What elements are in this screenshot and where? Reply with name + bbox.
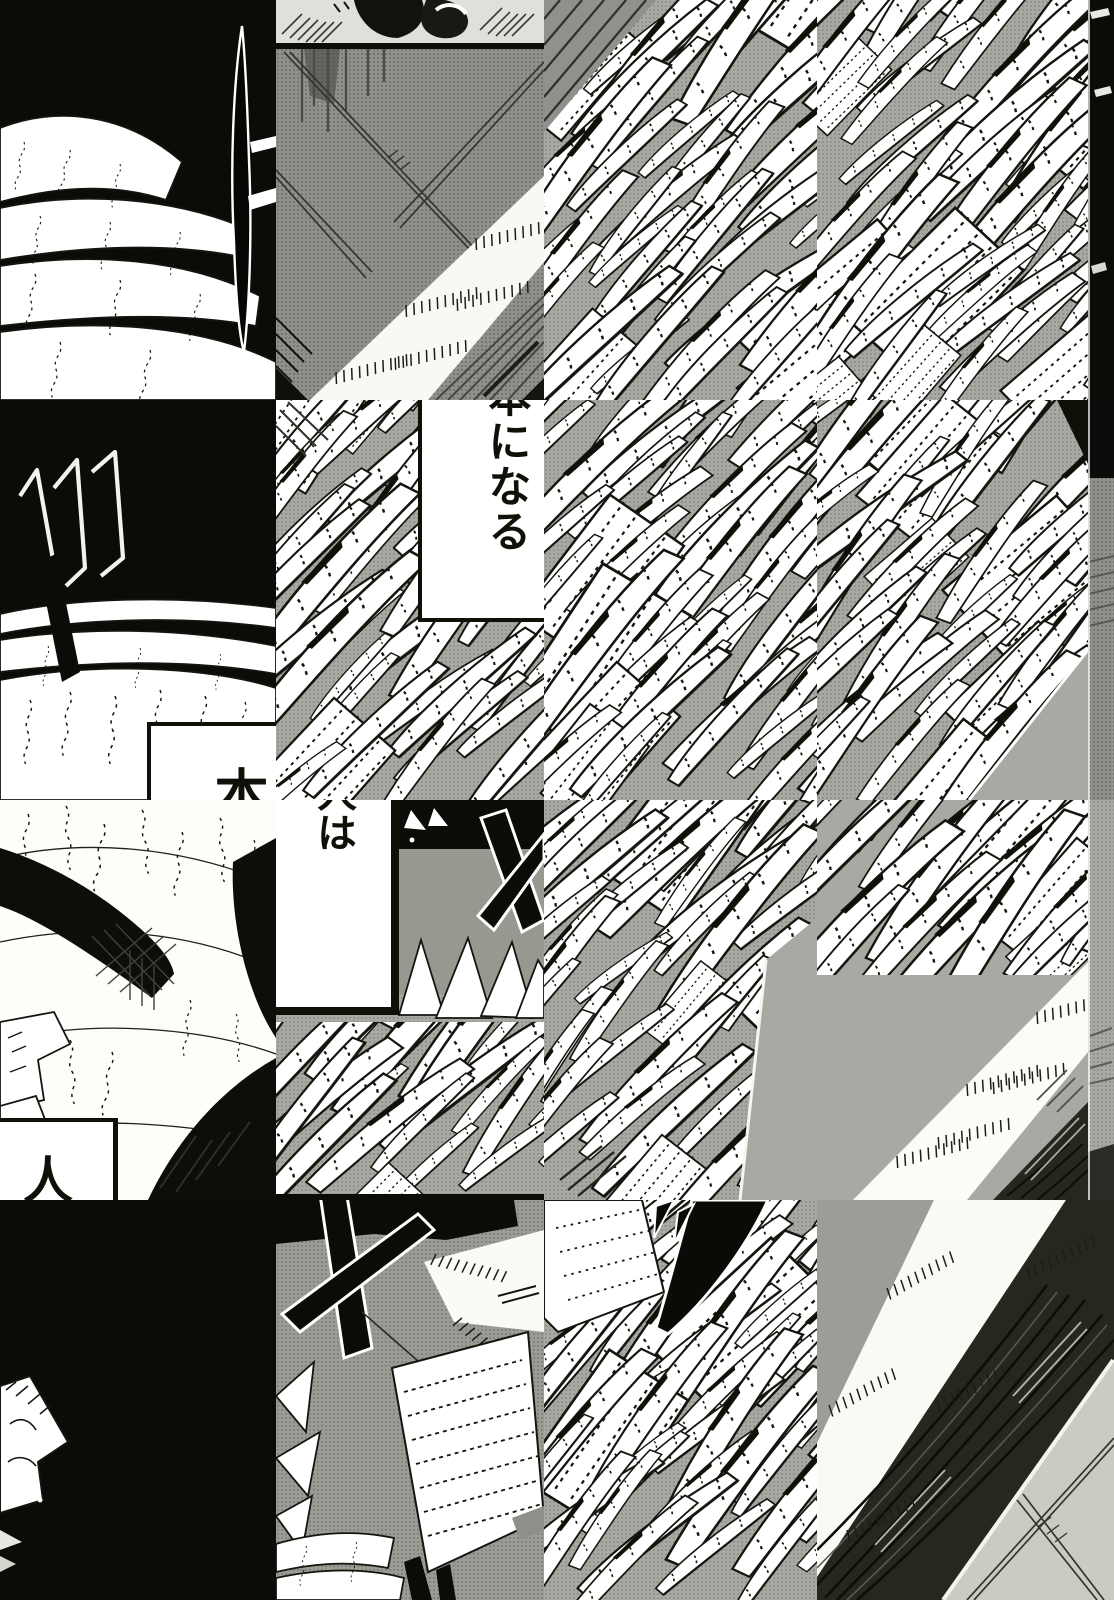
black-panel-paper-stack-artwork <box>0 0 276 400</box>
panel-overlay <box>544 800 817 1200</box>
edge-strip-artwork <box>1088 800 1114 1200</box>
panel-r3-c0 <box>0 1200 276 1600</box>
speech-text-person: 人 <box>8 1154 80 1200</box>
panel-r0-c3 <box>817 0 1088 400</box>
panel-r0-edge <box>1088 0 1114 400</box>
speech-text-person-wa: 人は <box>310 800 356 852</box>
panel-r1-edge <box>1088 400 1114 800</box>
speech-text-become-book: 本になる <box>480 400 530 554</box>
edge-strip-artwork <box>1088 0 1114 400</box>
manga-page: 本 本になる <box>0 0 1114 1600</box>
panel-r3-c1 <box>276 1200 544 1600</box>
panel-r2-c1: 人は <box>276 800 544 1200</box>
panel-r1-c1: 本になる <box>276 400 544 800</box>
panel-r3-c3 <box>817 1200 1114 1600</box>
panel-r2-edge <box>1088 800 1114 1200</box>
paper-pile-artwork <box>276 1022 544 1200</box>
panel-r1-c2 <box>544 400 817 800</box>
panel-overlay <box>544 1200 817 1600</box>
panel-r2-c0: 人 <box>0 800 276 1200</box>
panel-overlay <box>817 400 1088 800</box>
speech-text-book: 本 <box>197 766 276 800</box>
paper-pile-artwork <box>817 800 1088 975</box>
floor-bands-artwork <box>817 1200 1114 1600</box>
panel-overlay <box>544 0 817 400</box>
panel-r1-c3 <box>817 400 1088 800</box>
panel-r0-c0 <box>0 0 276 400</box>
speech-bubble-person: 人 <box>0 1118 118 1200</box>
black-panel-corner-artwork <box>0 1200 276 1600</box>
paper-pile-artwork <box>817 0 1088 400</box>
gutter-black-band <box>276 1194 544 1200</box>
speech-bubble-person-wa: 人は <box>276 800 399 1011</box>
edge-strip-artwork <box>1088 400 1114 800</box>
paper-pile-artwork <box>544 400 817 800</box>
panel-r2-c3 <box>817 800 1088 1200</box>
panel-r1-c0: 本 <box>0 400 276 800</box>
panel-r3-c2 <box>544 1200 817 1600</box>
floor-grid-artwork <box>276 0 544 400</box>
panel-r2-c2 <box>544 800 817 1200</box>
x-mark-page-artwork <box>276 1200 544 1600</box>
speech-bubble-become-book: 本になる <box>418 400 544 622</box>
panel-r0-c1 <box>276 0 544 400</box>
panel-r0-c2 <box>544 0 817 400</box>
speech-bubble-book: 本 <box>147 722 276 800</box>
